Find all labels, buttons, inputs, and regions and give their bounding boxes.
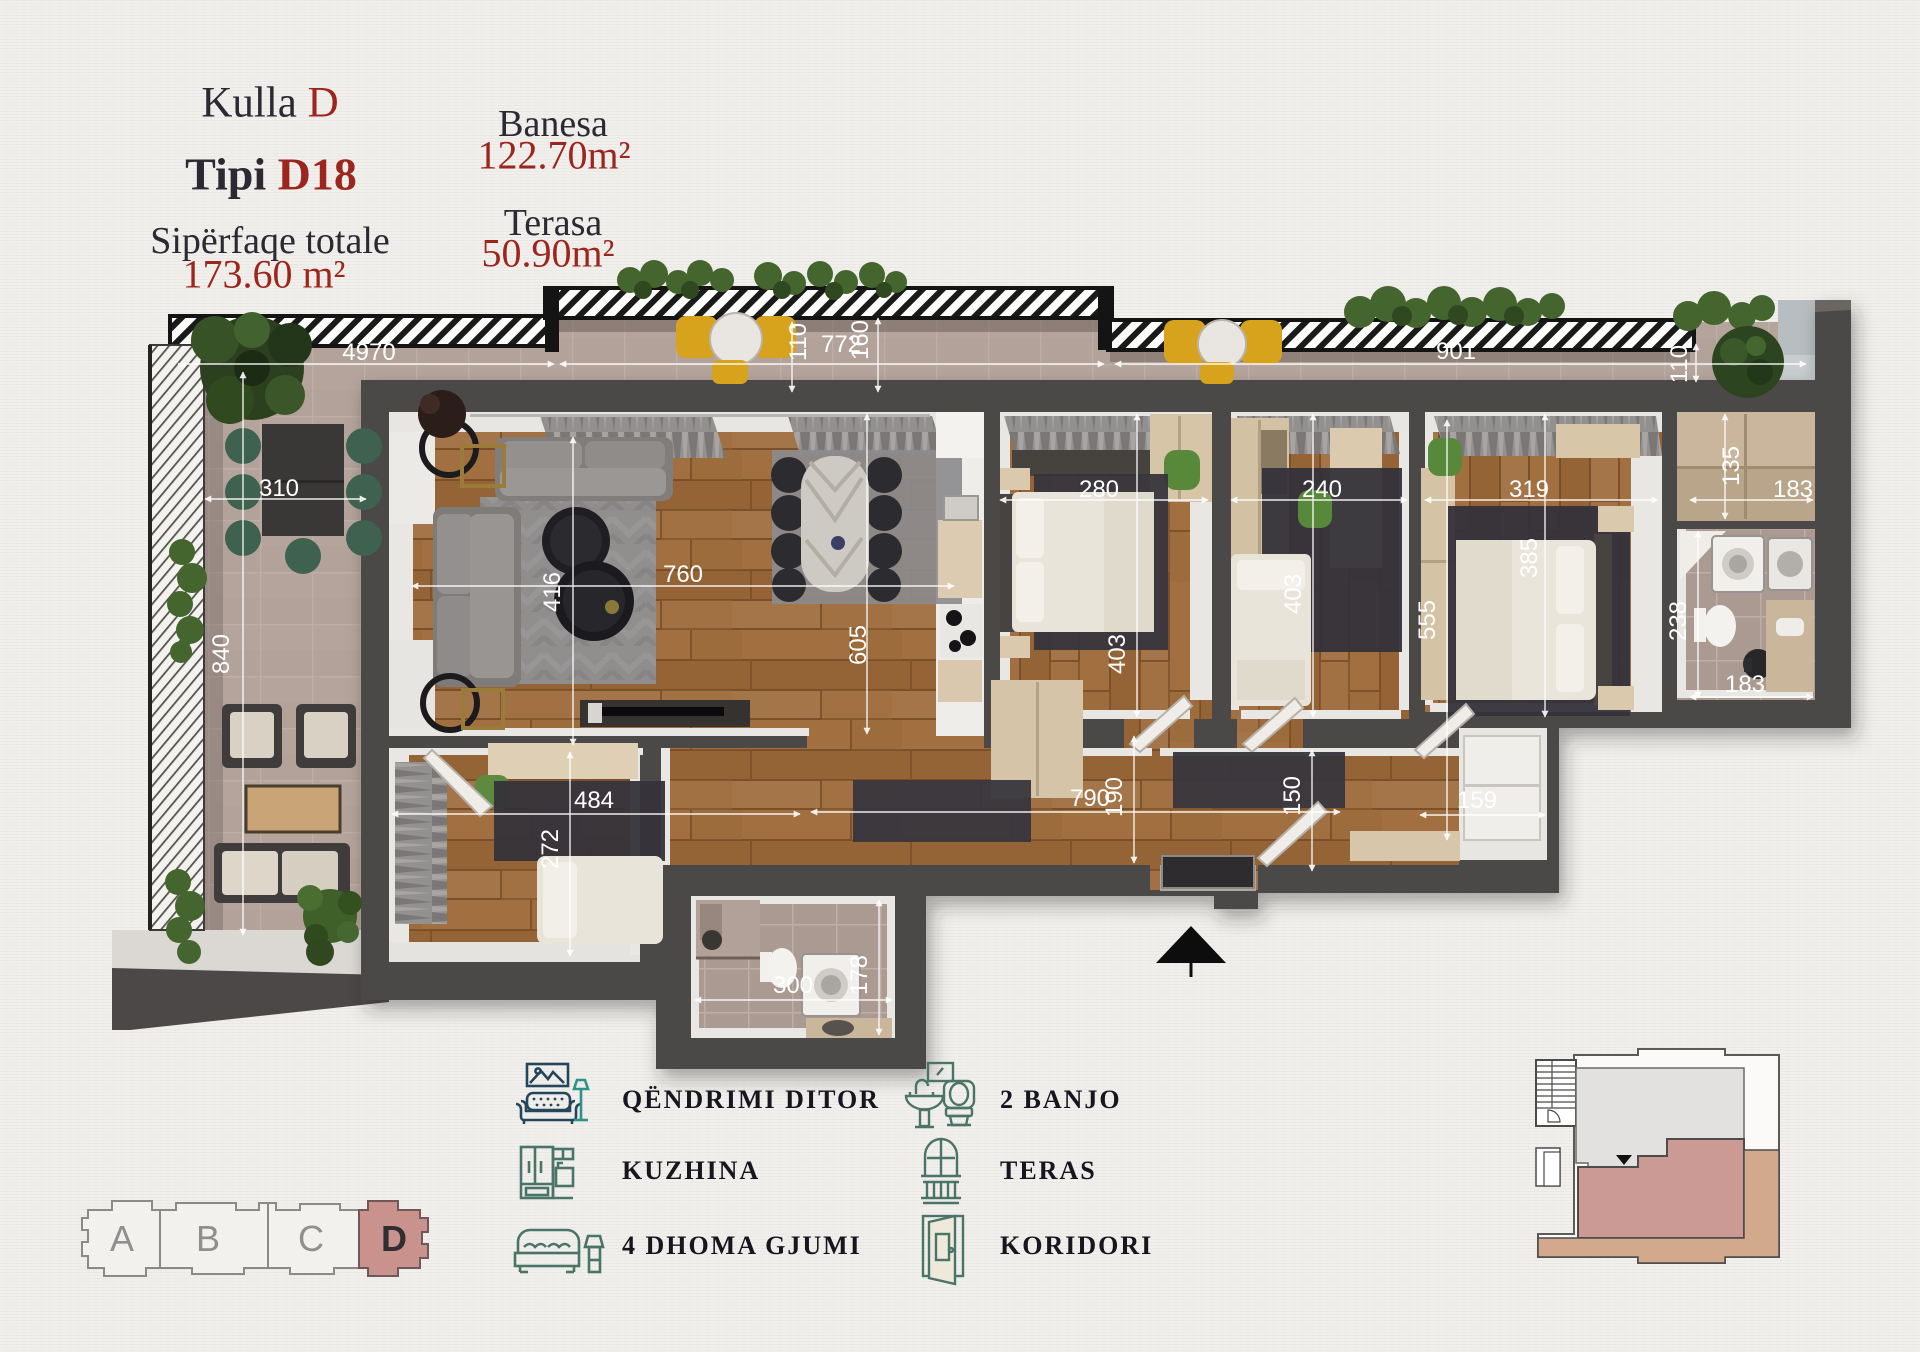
svg-text:4970: 4970 [342,339,395,366]
svg-text:310: 310 [259,475,299,502]
svg-text:B: B [196,1218,220,1259]
svg-text:555: 555 [1414,600,1441,640]
svg-text:110: 110 [785,323,812,361]
svg-text:484: 484 [574,787,614,814]
svg-text:272: 272 [537,829,564,869]
svg-text:159: 159 [1457,787,1497,814]
svg-text:183: 183 [1725,671,1765,698]
svg-text:605: 605 [845,625,872,665]
svg-text:385: 385 [1516,538,1543,578]
svg-text:240: 240 [1302,476,1342,503]
svg-text:901: 901 [1436,338,1476,365]
svg-text:160: 160 [847,320,874,360]
svg-text:135: 135 [1718,446,1745,486]
svg-text:403: 403 [1104,634,1131,674]
svg-text:150: 150 [1279,776,1306,816]
svg-text:319: 319 [1509,476,1549,503]
svg-text:840: 840 [208,634,235,674]
svg-text:C: C [298,1218,324,1259]
svg-text:238: 238 [1665,601,1692,641]
svg-text:D: D [381,1218,407,1259]
svg-text:300: 300 [773,972,813,999]
svg-text:190: 190 [1101,777,1128,817]
svg-text:178: 178 [846,955,873,995]
svg-text:110: 110 [1666,345,1693,383]
svg-text:280: 280 [1079,476,1119,503]
svg-text:A: A [110,1218,134,1259]
svg-text:403: 403 [1280,574,1307,614]
svg-text:183: 183 [1773,476,1813,503]
svg-text:760: 760 [663,561,703,588]
svg-text:416: 416 [539,572,566,612]
